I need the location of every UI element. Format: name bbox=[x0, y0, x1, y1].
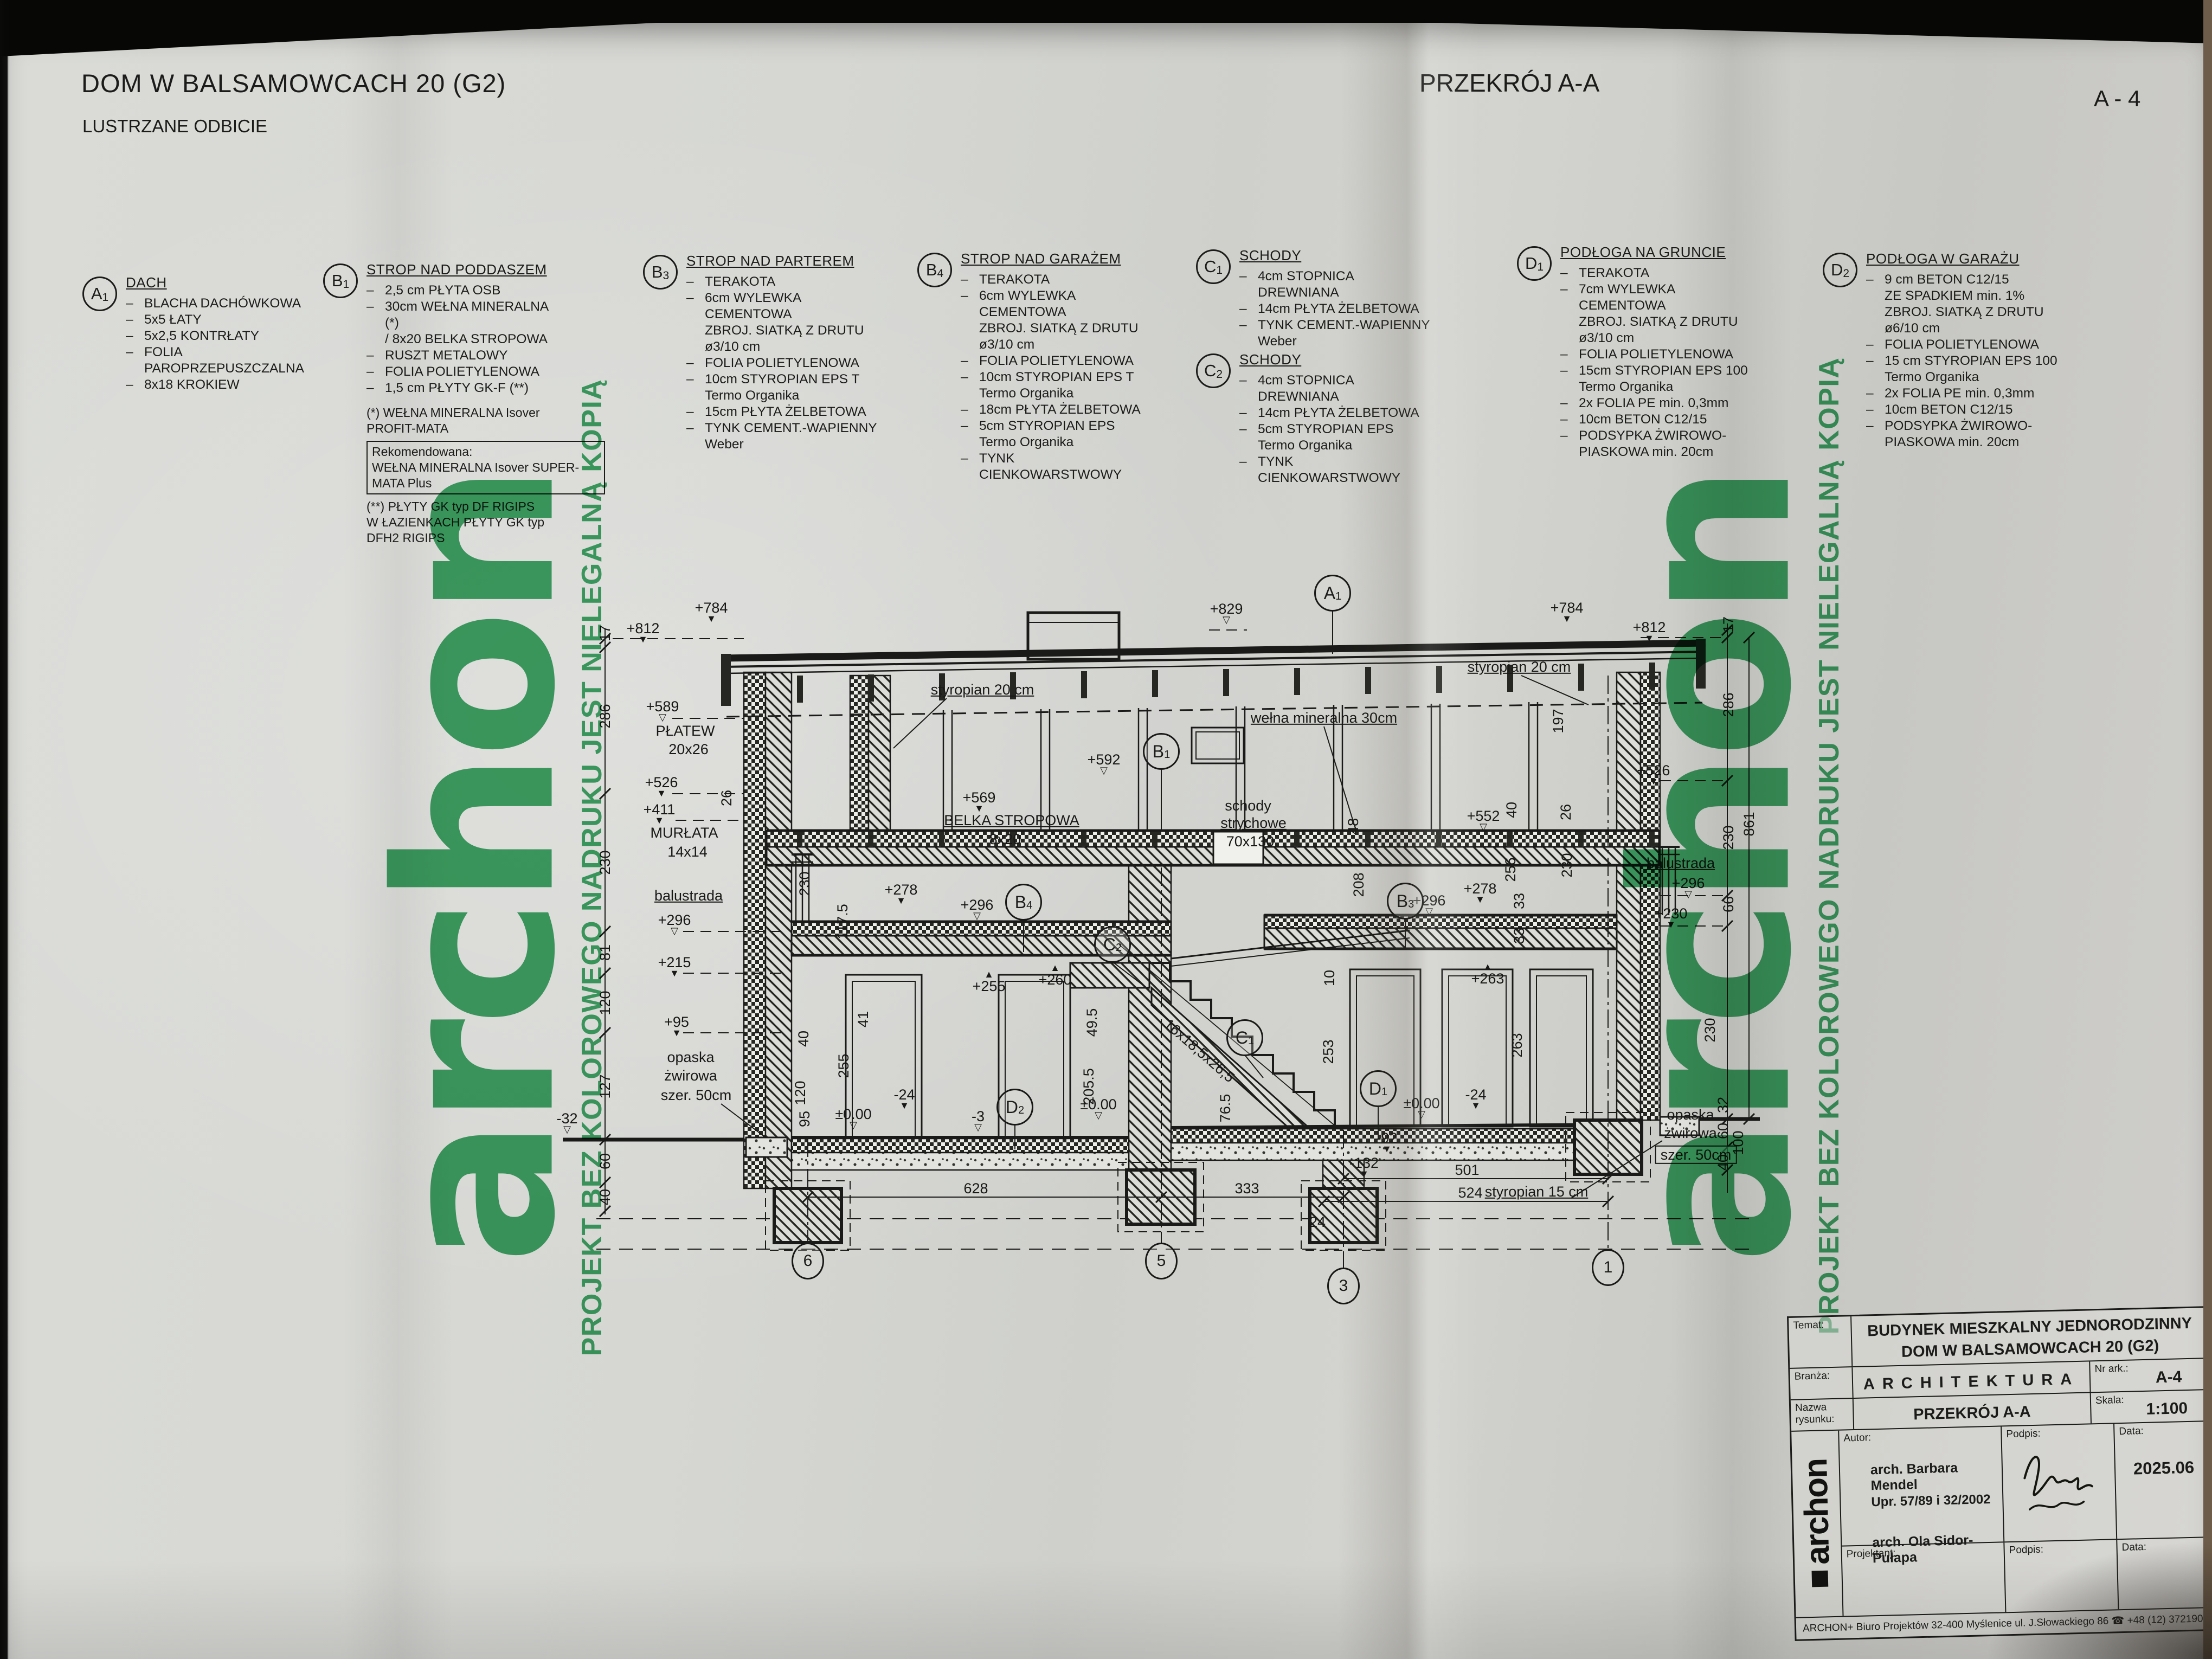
legend-badge: D1 bbox=[1517, 246, 1552, 281]
legend-item: –FOLIA POLIETYLENOWA bbox=[1560, 346, 1754, 363]
projektant-cell: Projektant: bbox=[1842, 1542, 2005, 1616]
legend-title: DACH bbox=[126, 274, 320, 291]
section-drawing-area: +784▼+812▼+589▽PŁATEW20x26+526▼+411▼MURŁ… bbox=[542, 575, 1789, 1334]
reference-bubble-B4: B4 bbox=[1005, 884, 1042, 921]
legend-item: –TERAKOTA bbox=[686, 274, 880, 290]
temat-label-cell: Temat: bbox=[1789, 1316, 1851, 1368]
photo-left-edge bbox=[0, 0, 10, 1659]
legend-title: SCHODY bbox=[1239, 351, 1433, 368]
reference-bubble-C2: C2 bbox=[1094, 926, 1131, 963]
legend-item: –14cm PŁYTA ŻELBETOWA bbox=[1239, 405, 1433, 421]
archon-logo-mark: ◼ bbox=[1804, 1570, 1832, 1589]
legend-item: –10cm STYROPIAN EPS TTermo Organika bbox=[961, 369, 1155, 402]
legend-item: –2,5 cm PŁYTA OSB bbox=[366, 282, 561, 299]
photo-of-drawing: DOM W BALSAMOWCACH 20 (G2) LUSTRZANE ODB… bbox=[0, 0, 2212, 1659]
branza-value: ARCHITEKTURA bbox=[1851, 1361, 2089, 1398]
date-value: 2025.06 bbox=[2121, 1457, 2207, 1479]
legend-item: –BLACHA DACHÓWKOWA bbox=[126, 295, 320, 312]
legend-title: STROP NAD GARAŻEM bbox=[961, 250, 1155, 267]
legend-item: –30cm WEŁNA MINERALNA (*)/ 8x20 BELKA ST… bbox=[366, 299, 561, 348]
legend-item: –4cm STOPNICA DREWNIANA bbox=[1239, 372, 1433, 405]
grid-axis-bubble-3: 3 bbox=[1327, 1268, 1360, 1304]
legend-block-strop-nad-parterem: B3STROP NAD PARTEREM–TERAKOTA–6cm WYLEWK… bbox=[643, 253, 880, 453]
legend-item: –TERAKOTA bbox=[961, 272, 1155, 288]
sheet-number: A - 4 bbox=[2094, 86, 2140, 112]
page-title: DOM W BALSAMOWCACH 20 (G2) bbox=[81, 68, 506, 98]
legend-item: –9 cm BETON C12/15ZE SPADKIEM min. 1%ZBR… bbox=[1866, 272, 2060, 337]
legend-item: –15cm PŁYTA ŻELBETOWA bbox=[686, 404, 880, 420]
legend-item: –FOLIA POLIETYLENOWA bbox=[1866, 337, 2060, 353]
legend-item: –PODSYPKA ŻWIROWO-PIASKOWA min. 20cm bbox=[1560, 428, 1754, 460]
temat-value: BUDYNEK MIESZKALNY JEDNORODZINNY DOM W B… bbox=[1850, 1308, 2208, 1366]
legend-item: –14cm PŁYTA ŻELBETOWA bbox=[1239, 301, 1433, 317]
archon-logo: ◼archon bbox=[1791, 1431, 1843, 1617]
nr-ark-cell: Nr ark.: A-4 bbox=[2089, 1359, 2209, 1392]
legend-block-strop-nad-poddaszem: B1STROP NAD PODDASZEM–2,5 cm PŁYTA OSB–3… bbox=[323, 261, 561, 546]
nazwa-value: PRZEKRÓJ A-A bbox=[1853, 1393, 2091, 1429]
legend-item: –2x FOLIA PE min. 0,3mm bbox=[1866, 385, 2060, 402]
branza-label-cell: Branża: bbox=[1790, 1367, 1852, 1399]
legend-item: –TYNK CIENKOWARSTWOWY bbox=[961, 451, 1155, 483]
legend-item: –10cm STYROPIAN EPS TTermo Organika bbox=[686, 371, 880, 404]
legend-item: –8x18 KROKIEW bbox=[126, 377, 320, 393]
grid-axis-bubble-6: 6 bbox=[792, 1243, 824, 1279]
legend-badge: B3 bbox=[643, 255, 678, 290]
legend-badge: C2 bbox=[1196, 353, 1231, 388]
legend-item: –5x5 ŁATY bbox=[126, 312, 320, 328]
reference-bubble-D1: D1 bbox=[1360, 1070, 1397, 1107]
legend-badge: D2 bbox=[1823, 253, 1857, 287]
legend-block-strop-nad-garazem: B4STROP NAD GARAŻEM–TERAKOTA–6cm WYLEWKA… bbox=[917, 250, 1155, 483]
legend-badge: A1 bbox=[82, 276, 117, 311]
legend-item: –FOLIA POLIETYLENOWA bbox=[686, 355, 880, 371]
photo-top-left-edge bbox=[0, 22, 678, 56]
legend-item: –TERAKOTA bbox=[1560, 265, 1754, 281]
legend-item: –TYNK CEMENT.-WAPIENNY Weber bbox=[1239, 317, 1433, 350]
legend-item: –FOLIA POLIETYLENOWA bbox=[366, 364, 561, 380]
legend-block-podloga-na-gruncie: D1PODŁOGA NA GRUNCIE–TERAKOTA–7cm WYLEWK… bbox=[1517, 244, 1754, 460]
data-cell: Data: 2025.06 bbox=[2113, 1422, 2212, 1539]
page-subtitle: LUSTRZANE ODBICIE bbox=[82, 116, 267, 137]
legend-item: –18cm PŁYTA ŻELBETOWA bbox=[961, 402, 1155, 418]
podpis-cell: Podpis: bbox=[2001, 1424, 2116, 1541]
legend-badge: C1 bbox=[1196, 249, 1231, 284]
reference-bubble-B1: B1 bbox=[1143, 733, 1180, 770]
grid-axis-bubble-1: 1 bbox=[1592, 1249, 1624, 1286]
legend-block-dach: A1DACH–BLACHA DACHÓWKOWA–5x5 ŁATY–5x2,5 … bbox=[82, 274, 320, 393]
legend-block-schody-c1: C1SCHODY–4cm STOPNICA DREWNIANA–14cm PŁY… bbox=[1196, 247, 1433, 350]
legend-item: –5cm STYROPIAN EPSTermo Organika bbox=[961, 418, 1155, 451]
photo-top-right-edge bbox=[1399, 22, 2212, 43]
legend-item: –2x FOLIA PE min. 0,3mm bbox=[1560, 395, 1754, 411]
section-title: PRZEKRÓJ A-A bbox=[1419, 68, 1599, 98]
legend-title: SCHODY bbox=[1239, 247, 1433, 264]
legend-item: –15 cm STYROPIAN EPS 100Termo Organika bbox=[1866, 353, 2060, 385]
legend-item: –FOLIA PAROPRZEPUSZCZALNA bbox=[126, 344, 320, 377]
table-edge bbox=[2203, 0, 2212, 1659]
sheet-number-value: A-4 bbox=[2128, 1359, 2209, 1391]
legend-item: –1,5 cm PŁYTY GK-F (**) bbox=[366, 380, 561, 396]
legend-badge: B1 bbox=[323, 263, 358, 298]
scale-value: 1:100 bbox=[2124, 1390, 2210, 1423]
legend-title: STROP NAD PODDASZEM bbox=[366, 261, 561, 278]
legend-item: –5x2,5 KONTRŁATY bbox=[126, 328, 320, 344]
signature bbox=[2008, 1438, 2107, 1527]
legend-block-schody-c2: C2SCHODY–4cm STOPNICA DREWNIANA–14cm PŁY… bbox=[1196, 351, 1433, 486]
legend-item: –10cm BETON C12/15 bbox=[1866, 402, 2060, 418]
legend-title: STROP NAD PARTEREM bbox=[686, 253, 880, 269]
reference-bubble-A1: A1 bbox=[1314, 575, 1351, 612]
legend-title: PODŁOGA W GARAŻU bbox=[1866, 250, 2060, 267]
legend-title: PODŁOGA NA GRUNCIE bbox=[1560, 244, 1754, 261]
legend-badge: B4 bbox=[917, 253, 952, 287]
legend-note-2: (**) PŁYTY GK typ DF RIGIPSW ŁAZIENKACH … bbox=[366, 499, 561, 546]
legend-item: –6cm WYLEWKA CEMENTOWAZBROJ. SIATKĄ Z DR… bbox=[961, 288, 1155, 353]
legend-block-podloga-w-garazu: D2PODŁOGA W GARAŻU–9 cm BETON C12/15ZE S… bbox=[1823, 250, 2060, 451]
skala-cell: Skala: 1:100 bbox=[2090, 1390, 2210, 1423]
reference-bubble-C1: C1 bbox=[1226, 1019, 1263, 1056]
legend-item: –FOLIA POLIETYLENOWA bbox=[961, 353, 1155, 369]
nazwa-label-cell: Nazwa rysunku: bbox=[1791, 1399, 1853, 1431]
reference-bubble-B3: B3 bbox=[1387, 883, 1424, 919]
legend-item: –TYNK CIENKOWARSTWOWY bbox=[1239, 454, 1433, 486]
grid-axis-bubble-5: 5 bbox=[1145, 1243, 1178, 1279]
legend-item: –RUSZT METALOWY bbox=[366, 348, 561, 364]
legend-item: –5cm STYROPIAN EPSTermo Organika bbox=[1239, 421, 1433, 454]
reference-bubble-D2: D2 bbox=[996, 1089, 1033, 1126]
legend-item: –4cm STOPNICA DREWNIANA bbox=[1239, 268, 1433, 301]
photo-corner-shadow bbox=[1984, 1540, 2212, 1659]
legend-item: –PODSYPKA ŻWIROWO-PIASKOWA min. 20cm bbox=[1866, 418, 2060, 451]
legend-item: –TYNK CEMENT.-WAPIENNY Weber bbox=[686, 420, 880, 453]
legend-item: –15cm STYROPIAN EPS 100Termo Organika bbox=[1560, 363, 1754, 395]
photo-top-edge bbox=[0, 0, 2212, 23]
drawing-bubbles: A1B1B3B4C1C2D1D26531 bbox=[542, 575, 1789, 1334]
legend-item: –7cm WYLEWKA CEMENTOWAZBROJ. SIATKĄ Z DR… bbox=[1560, 281, 1754, 346]
autor-cell: Autor: arch. Barbara Mendel Upr. 57/89 i… bbox=[1839, 1426, 2003, 1545]
legend-item: –10cm BETON C12/15 bbox=[1560, 411, 1754, 428]
legend-item: –6cm WYLEWKA CEMENTOWAZBROJ. SIATKĄ Z DR… bbox=[686, 290, 880, 355]
legend-note: (*) WEŁNA MINERALNA Isover PROFIT-MATA bbox=[366, 405, 561, 436]
legend-recommended-note: Rekomendowana:WEŁNA MINERALNA Isover SUP… bbox=[366, 441, 605, 494]
